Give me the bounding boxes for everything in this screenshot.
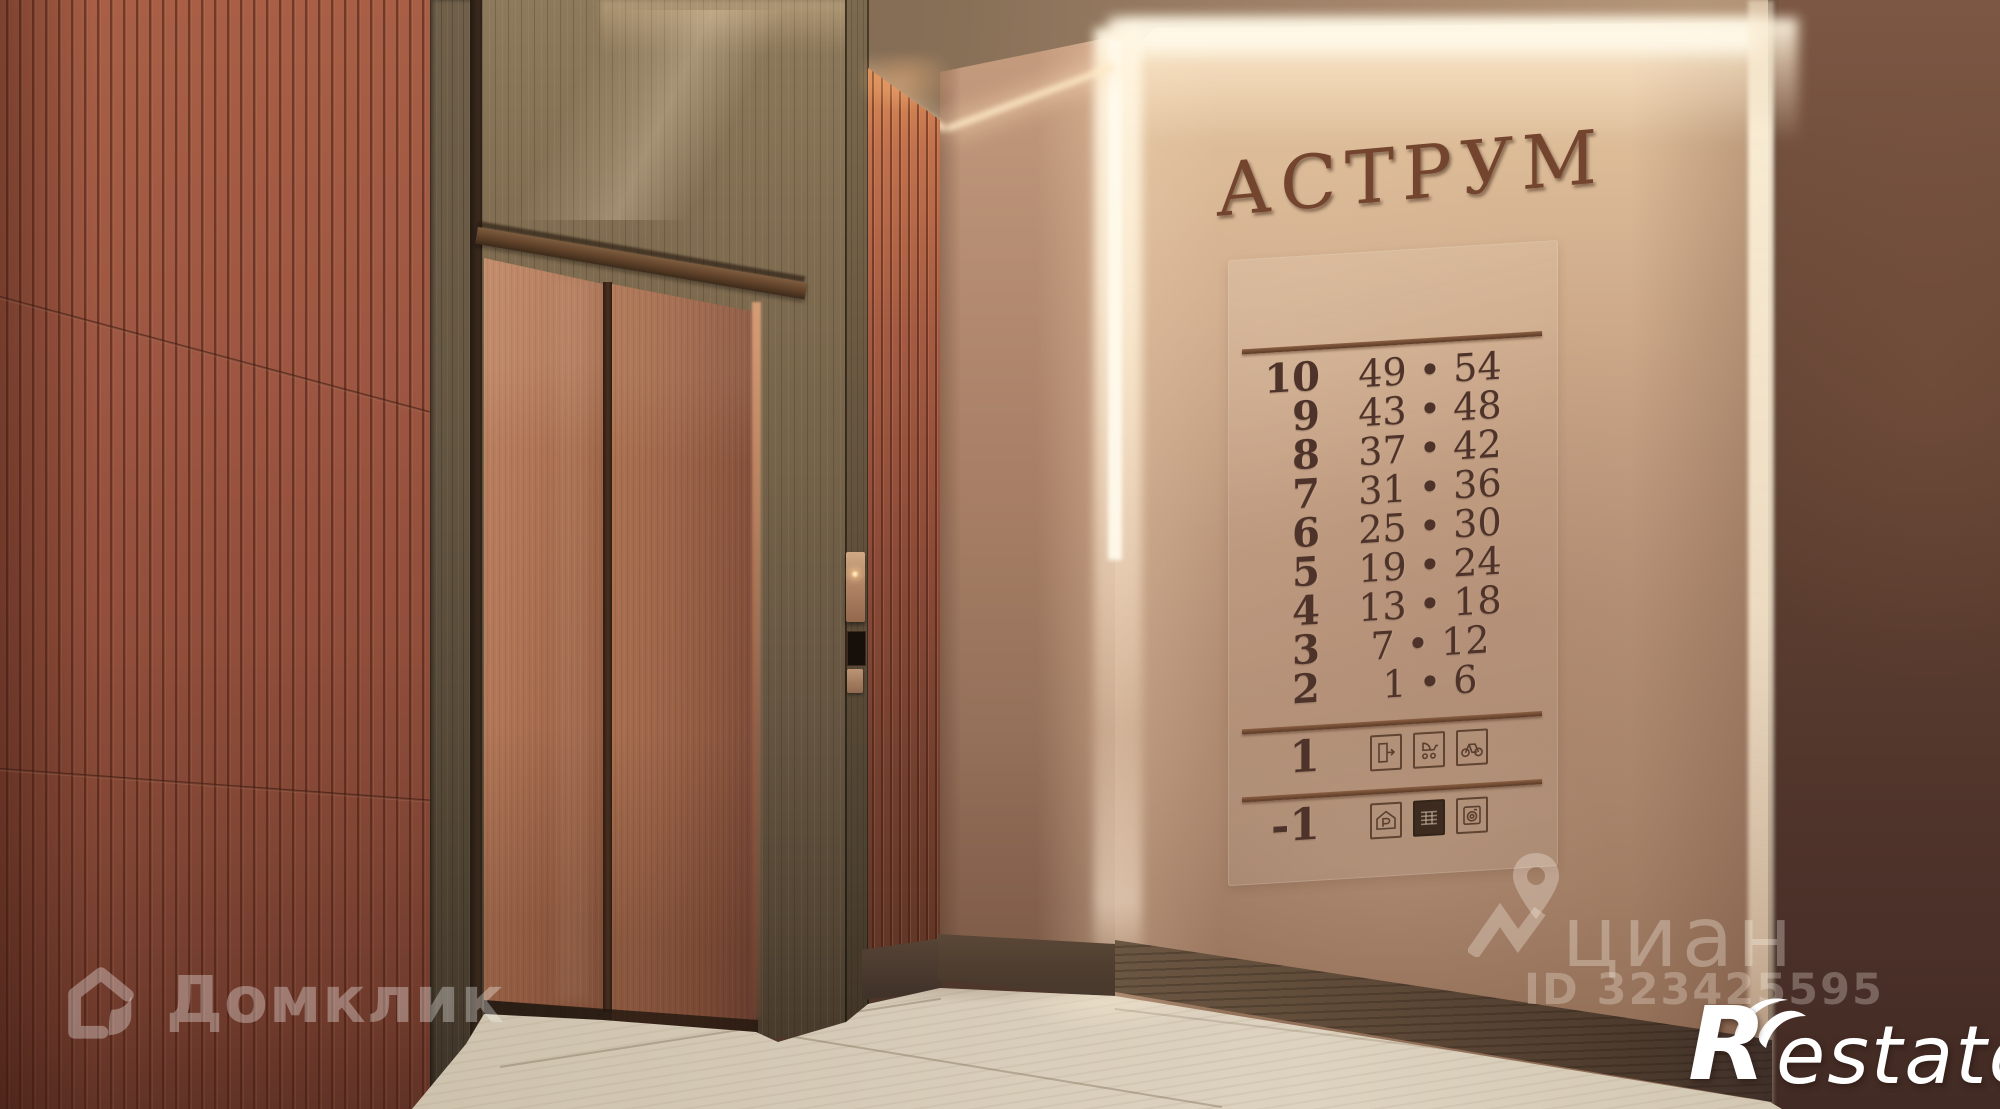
elevator-indicator-screen <box>847 631 866 666</box>
recess-wall <box>940 0 1116 1010</box>
lobby-scene: АСТРУМ 1049 • 54943 • 48837 • 42731 • 36… <box>0 0 2000 1109</box>
restate-initial: R <box>1688 994 1767 1096</box>
panel-seam <box>0 296 430 414</box>
door-edge-highlight <box>752 302 761 1018</box>
call-panel-stile <box>845 0 869 1030</box>
door-reflection <box>556 280 590 1002</box>
cian-figure-icon <box>1468 901 1554 957</box>
floor-number: 2 <box>1232 669 1320 713</box>
parking-icon <box>1370 802 1402 840</box>
cove-light-corner-hot <box>1108 40 1122 560</box>
light-reflection-top <box>600 0 850 55</box>
floor-number: 1 <box>1232 731 1320 788</box>
domclick-house-icon <box>58 958 144 1044</box>
elevator-door-right <box>612 284 756 1032</box>
wood-pilaster-left <box>430 0 472 1109</box>
washer-icon <box>1456 796 1488 834</box>
elevator-call-panel <box>846 552 865 622</box>
domclick-label: Домклик <box>166 969 505 1033</box>
right-fluted-panel <box>868 58 940 960</box>
floor-directory: 1049 • 54943 • 48837 • 42731 • 36625 • 3… <box>1232 246 1552 884</box>
stroller-icon <box>1413 731 1445 769</box>
elevator-door-gap <box>603 282 612 1012</box>
domclick-watermark: Домклик <box>58 958 505 1044</box>
elevator-call-button <box>851 570 859 578</box>
exit-icon <box>1370 734 1402 772</box>
restate-watermark: R estate <box>1688 992 2000 1109</box>
amenity-icons <box>1370 728 1488 771</box>
restate-label: estate <box>1776 1016 2000 1096</box>
panel-seam <box>0 768 439 803</box>
elevator-key-plate <box>847 669 863 693</box>
amenity-icons <box>1370 796 1488 839</box>
bicycle-icon <box>1456 728 1488 766</box>
cove-light-top-hot <box>1120 22 1760 52</box>
left-fluted-wall <box>0 0 432 1109</box>
tile-seam <box>770 1032 1222 1108</box>
storage-icon <box>1413 799 1445 837</box>
directory-floor-rows: 1049 • 54943 • 48837 • 42731 • 36625 • 3… <box>1232 342 1552 713</box>
floor-number: -1 <box>1232 799 1320 856</box>
fluted-panel-glow <box>860 55 950 135</box>
